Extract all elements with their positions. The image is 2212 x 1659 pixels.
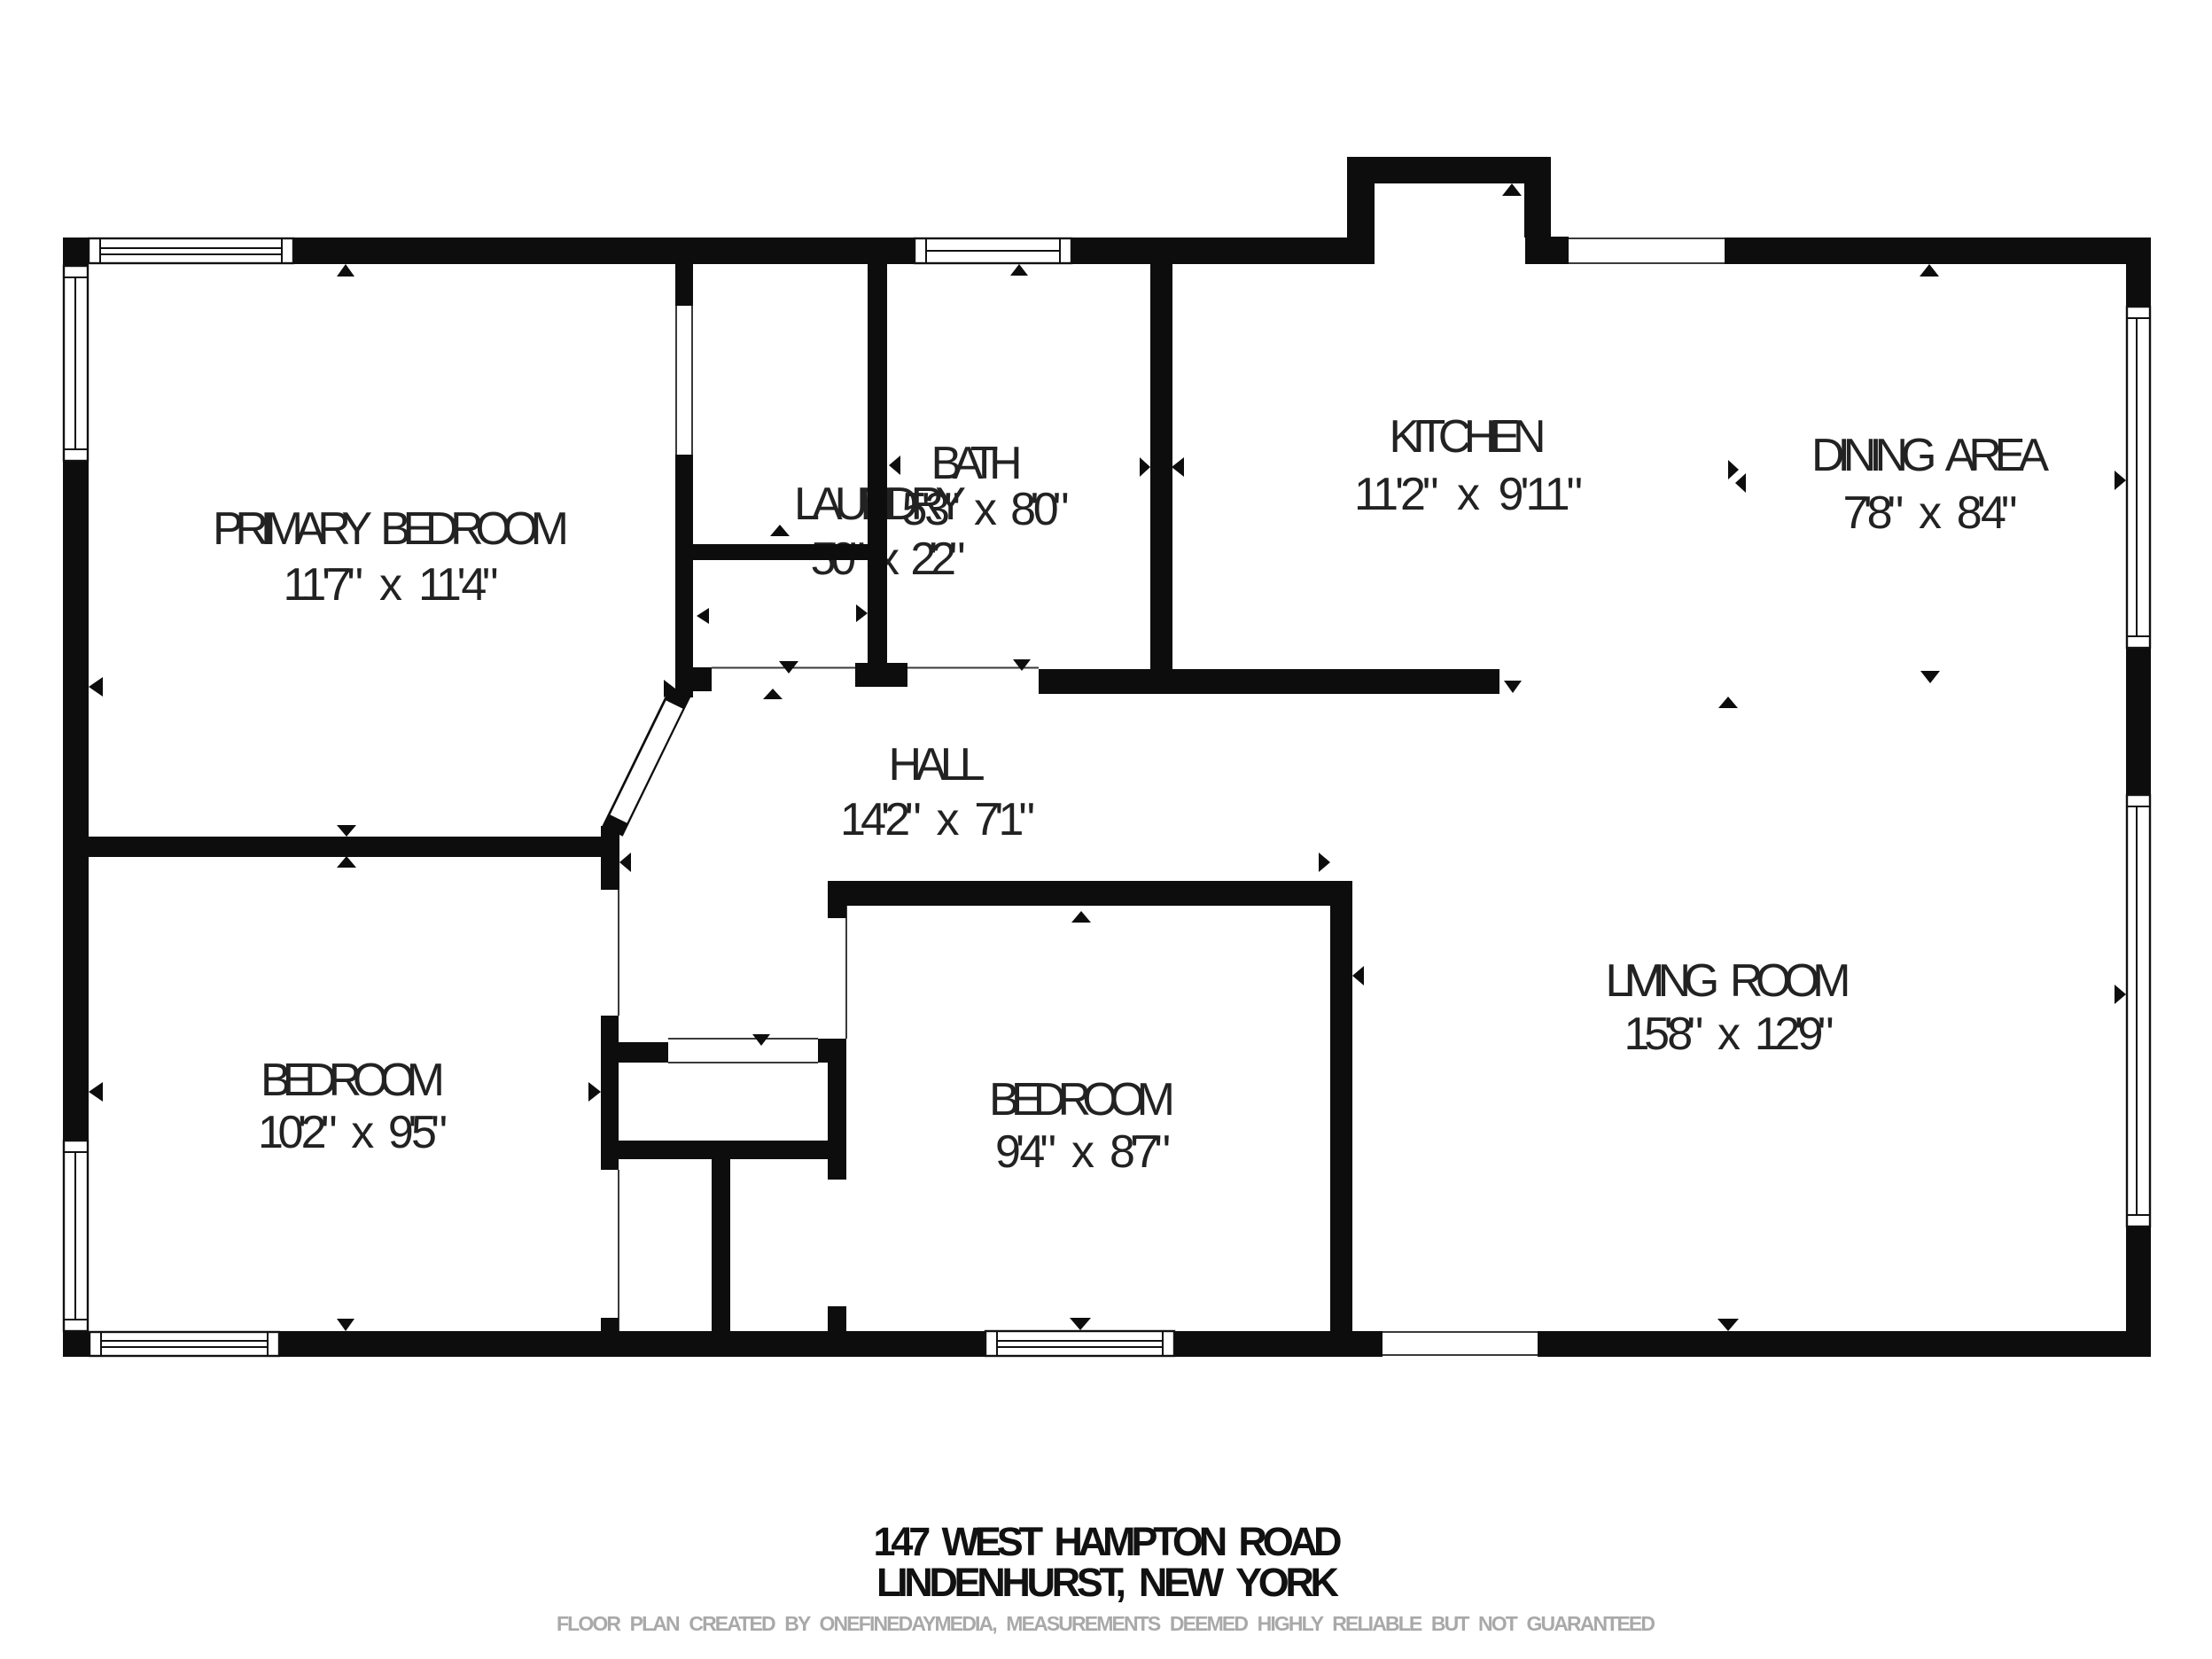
- svg-text:14'2" x 7'1": 14'2" x 7'1": [840, 794, 1035, 845]
- svg-text:5'3" x 8'0": 5'3" x 8'0": [902, 484, 1070, 535]
- svg-text:FLOOR PLAN CREATED BY ONEFINED: FLOOR PLAN CREATED BY ONEFINEDAYMEDIA, M…: [557, 1612, 1655, 1635]
- svg-text:LINDENHURST, NEW YORK: LINDENHURST, NEW YORK: [876, 1560, 1340, 1605]
- svg-text:HALL: HALL: [889, 739, 985, 791]
- svg-text:147 WEST HAMPTON ROAD: 147 WEST HAMPTON ROAD: [874, 1519, 1343, 1564]
- svg-text:LIVING ROOM: LIVING ROOM: [1606, 955, 1851, 1007]
- svg-text:BEDROOM: BEDROOM: [989, 1074, 1175, 1125]
- svg-text:10'2" x 9'5": 10'2" x 9'5": [258, 1107, 448, 1158]
- svg-text:PRIMARY BEDROOM: PRIMARY BEDROOM: [213, 503, 569, 555]
- svg-text:BATH: BATH: [931, 438, 1023, 489]
- svg-text:KITCHEN: KITCHEN: [1390, 411, 1546, 463]
- svg-text:DINING AREA: DINING AREA: [1811, 430, 2049, 481]
- svg-text:11'2" x 9'11": 11'2" x 9'11": [1354, 469, 1583, 520]
- svg-text:BEDROOM: BEDROOM: [261, 1055, 445, 1106]
- svg-text:9'4" x 8'7": 9'4" x 8'7": [995, 1126, 1171, 1178]
- svg-text:15'8" x 12'9": 15'8" x 12'9": [1624, 1009, 1834, 1060]
- svg-text:7'8" x 8'4": 7'8" x 8'4": [1843, 487, 2018, 539]
- svg-text:11'7" x 11'4": 11'7" x 11'4": [284, 559, 499, 611]
